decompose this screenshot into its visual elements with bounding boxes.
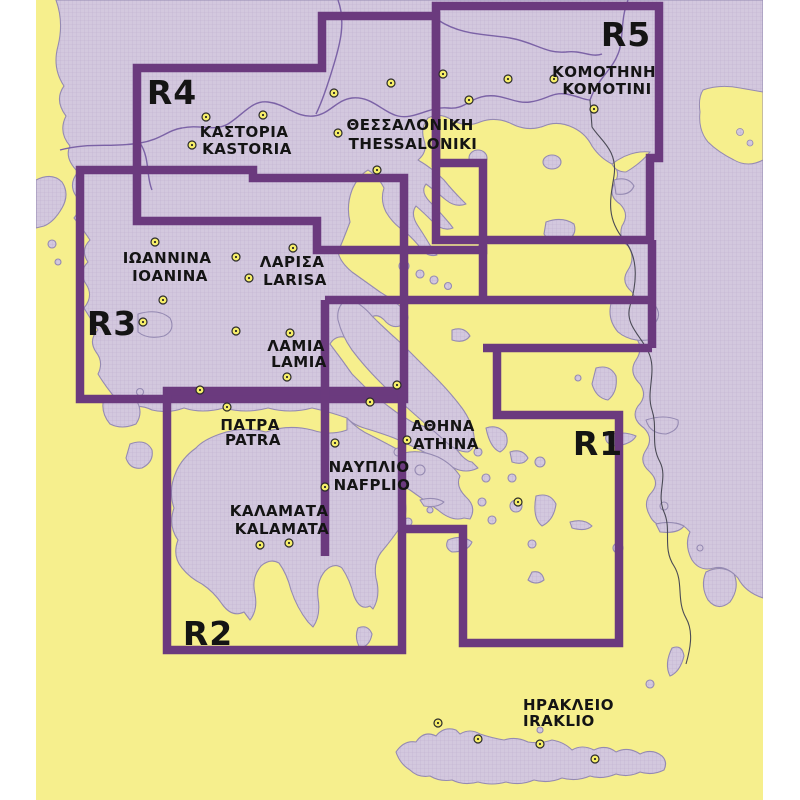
- map-canvas: R1 R2 R3 R4 R5 ΚΟΜΟΤΗΝΗ KOMOTINI ΘΕΣΣΑΛΟ…: [0, 0, 800, 800]
- city-label-kastoria: ΚΑΣΤΟΡΙΑ KASTORIA: [200, 123, 294, 158]
- city-label-larisa: ΛΑΡΙΣΑ LARISA: [260, 253, 330, 289]
- city-label-ioannina: ΙΩΑΝΝΙΝΑ ΙΟΑΝΙΝΑ: [123, 249, 218, 285]
- region-label-r2: R2: [183, 614, 233, 653]
- region-label-r5: R5: [601, 15, 651, 54]
- region-label-r1: R1: [573, 424, 623, 463]
- scan-margin-right: [763, 0, 800, 800]
- city-label-lamia: ΛΑΜΙΑ LAMIA: [267, 337, 331, 371]
- city-label-nafplio: ΝΑΥΠΛΙΟ NAFPLIO: [329, 458, 416, 494]
- region-label-r4: R4: [147, 73, 197, 112]
- city-label-patra: ΠΑΤΡΑ PATRA: [220, 416, 285, 449]
- scan-margin-left: [0, 0, 36, 800]
- sheet-index-map: R1 R2 R3 R4 R5 ΚΟΜΟΤΗΝΗ KOMOTINI ΘΕΣΣΑΛΟ…: [0, 0, 800, 800]
- city-label-athina: ΑΘΗΝΑ ATHINA: [411, 417, 480, 453]
- region-label-r3: R3: [87, 304, 137, 343]
- rhodes-island: [703, 568, 736, 606]
- city-label-kalamata: ΚΑΛΑΜΑΤΑ KALAMATA: [230, 502, 335, 538]
- city-label-komotini: ΚΟΜΟΤΗΝΗ KOMOTINI: [552, 63, 662, 98]
- city-label-thessaloniki: ΘΕΣΣΑΛΟΝΙΚΗ THESSALONIKI: [346, 116, 479, 153]
